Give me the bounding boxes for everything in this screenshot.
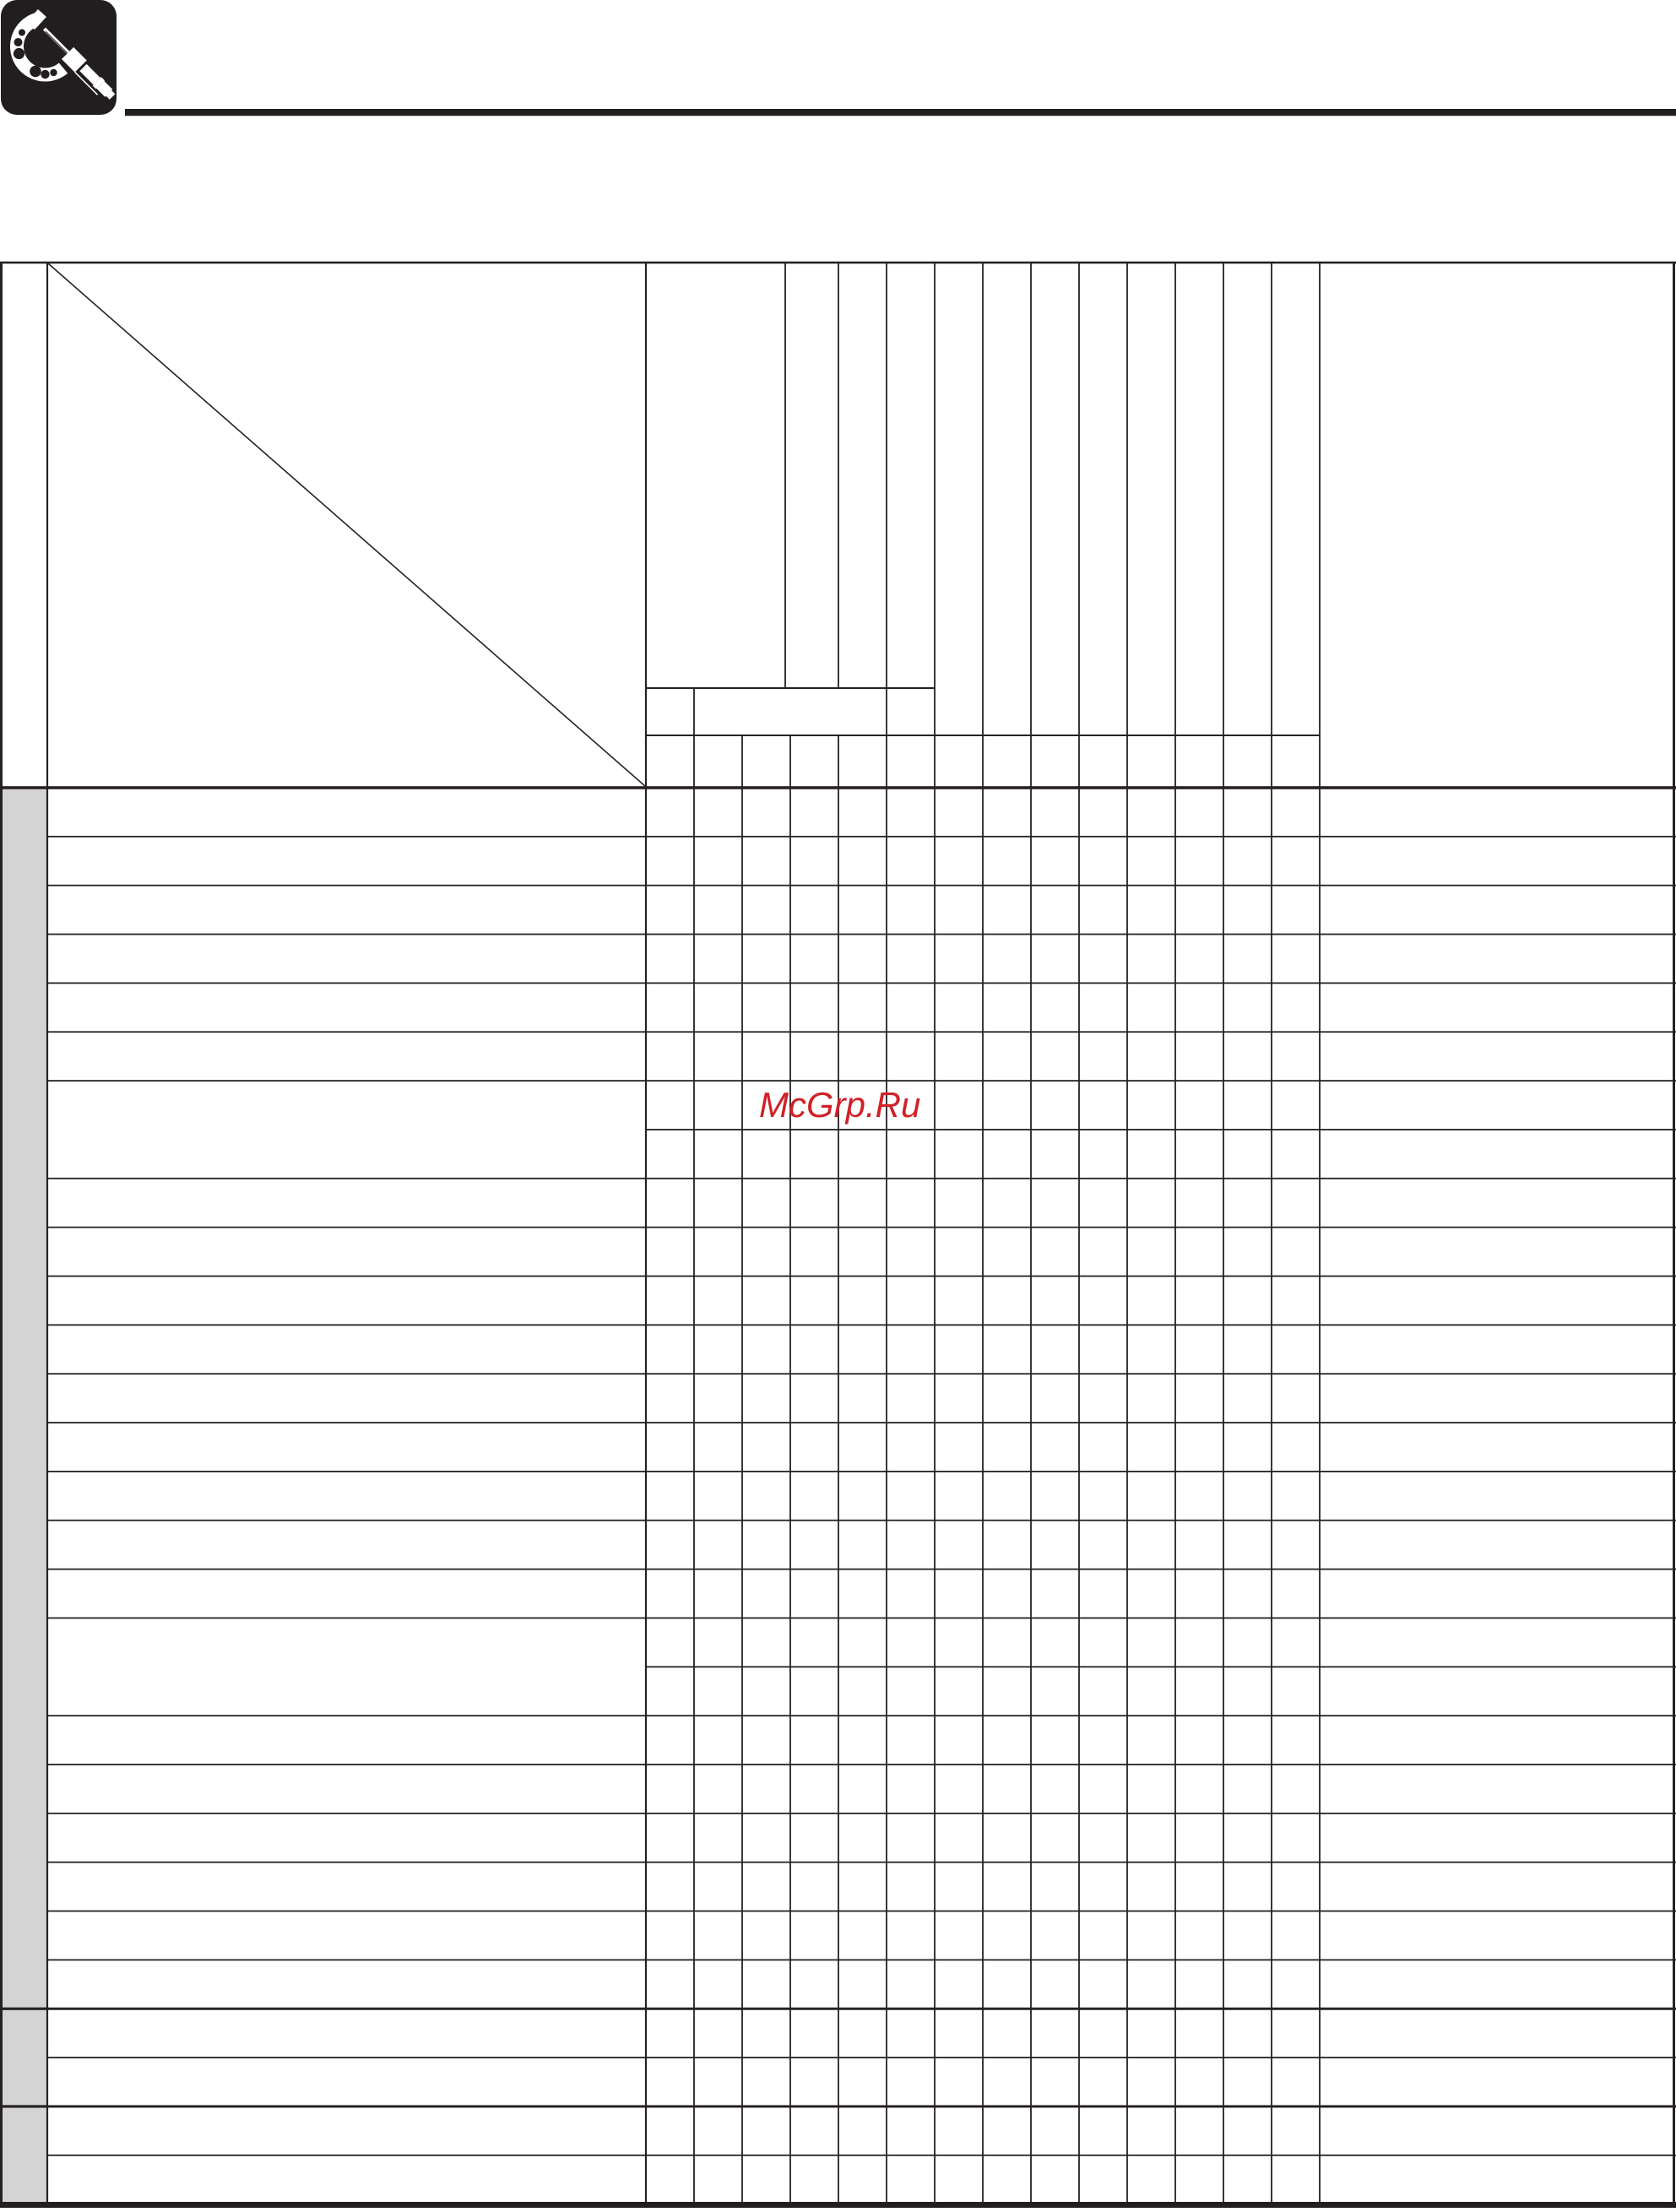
svg-text:McGrp.Ru: McGrp.Ru <box>759 1085 920 1125</box>
